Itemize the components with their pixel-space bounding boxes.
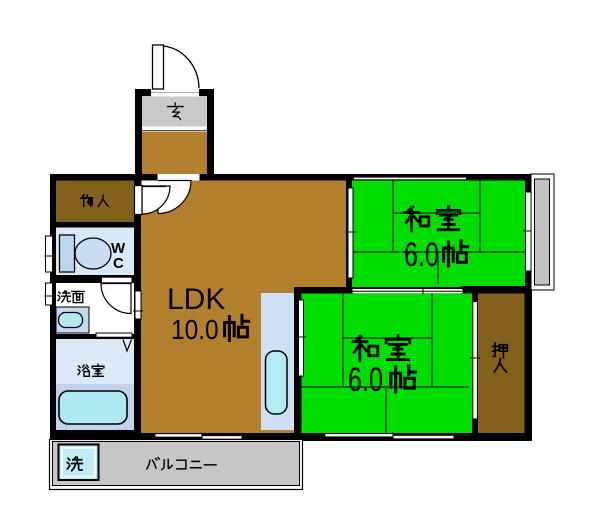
svg-text:6.0: 6.0 [404,236,439,274]
svg-text:10.0: 10.0 [171,313,219,345]
svg-text:LDK: LDK [167,283,225,316]
svg-text:C: C [113,255,124,272]
svg-text:6.0: 6.0 [348,361,383,399]
